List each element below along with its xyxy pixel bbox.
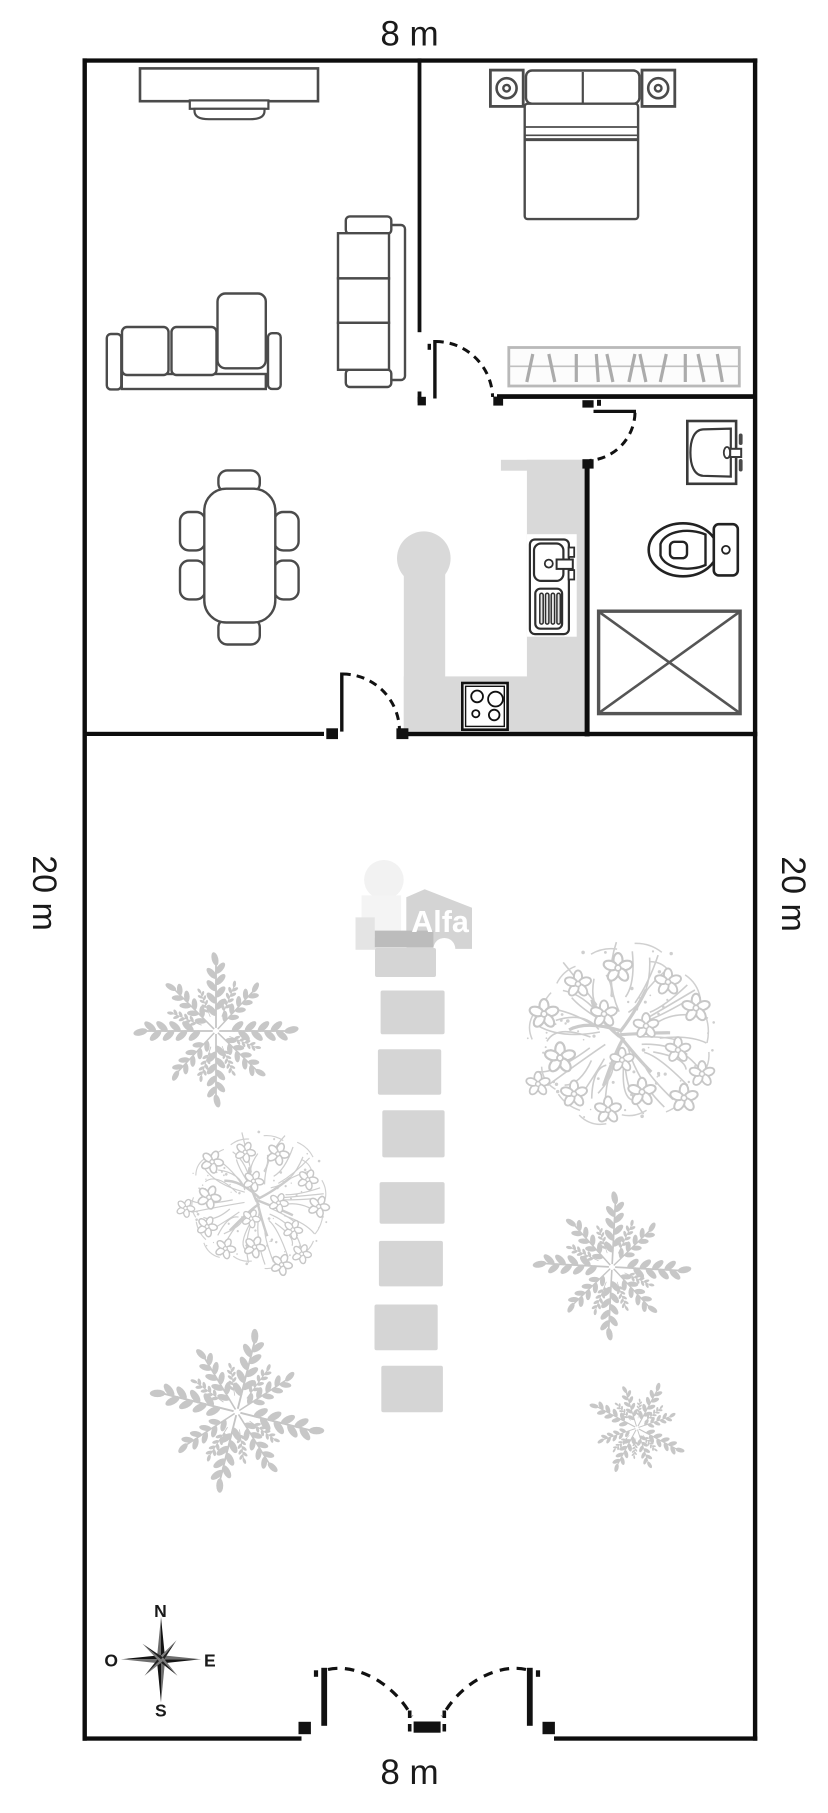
svg-text:Alfa: Alfa — [411, 905, 470, 939]
svg-text:20 m: 20 m — [774, 856, 812, 932]
svg-text:O: O — [104, 1650, 118, 1670]
svg-text:20 m: 20 m — [25, 855, 63, 931]
svg-text:8 m: 8 m — [380, 15, 438, 54]
svg-text:E: E — [204, 1650, 216, 1670]
svg-text:N: N — [154, 1601, 167, 1621]
svg-text:8 m: 8 m — [380, 1753, 438, 1792]
svg-text:S: S — [155, 1700, 167, 1720]
